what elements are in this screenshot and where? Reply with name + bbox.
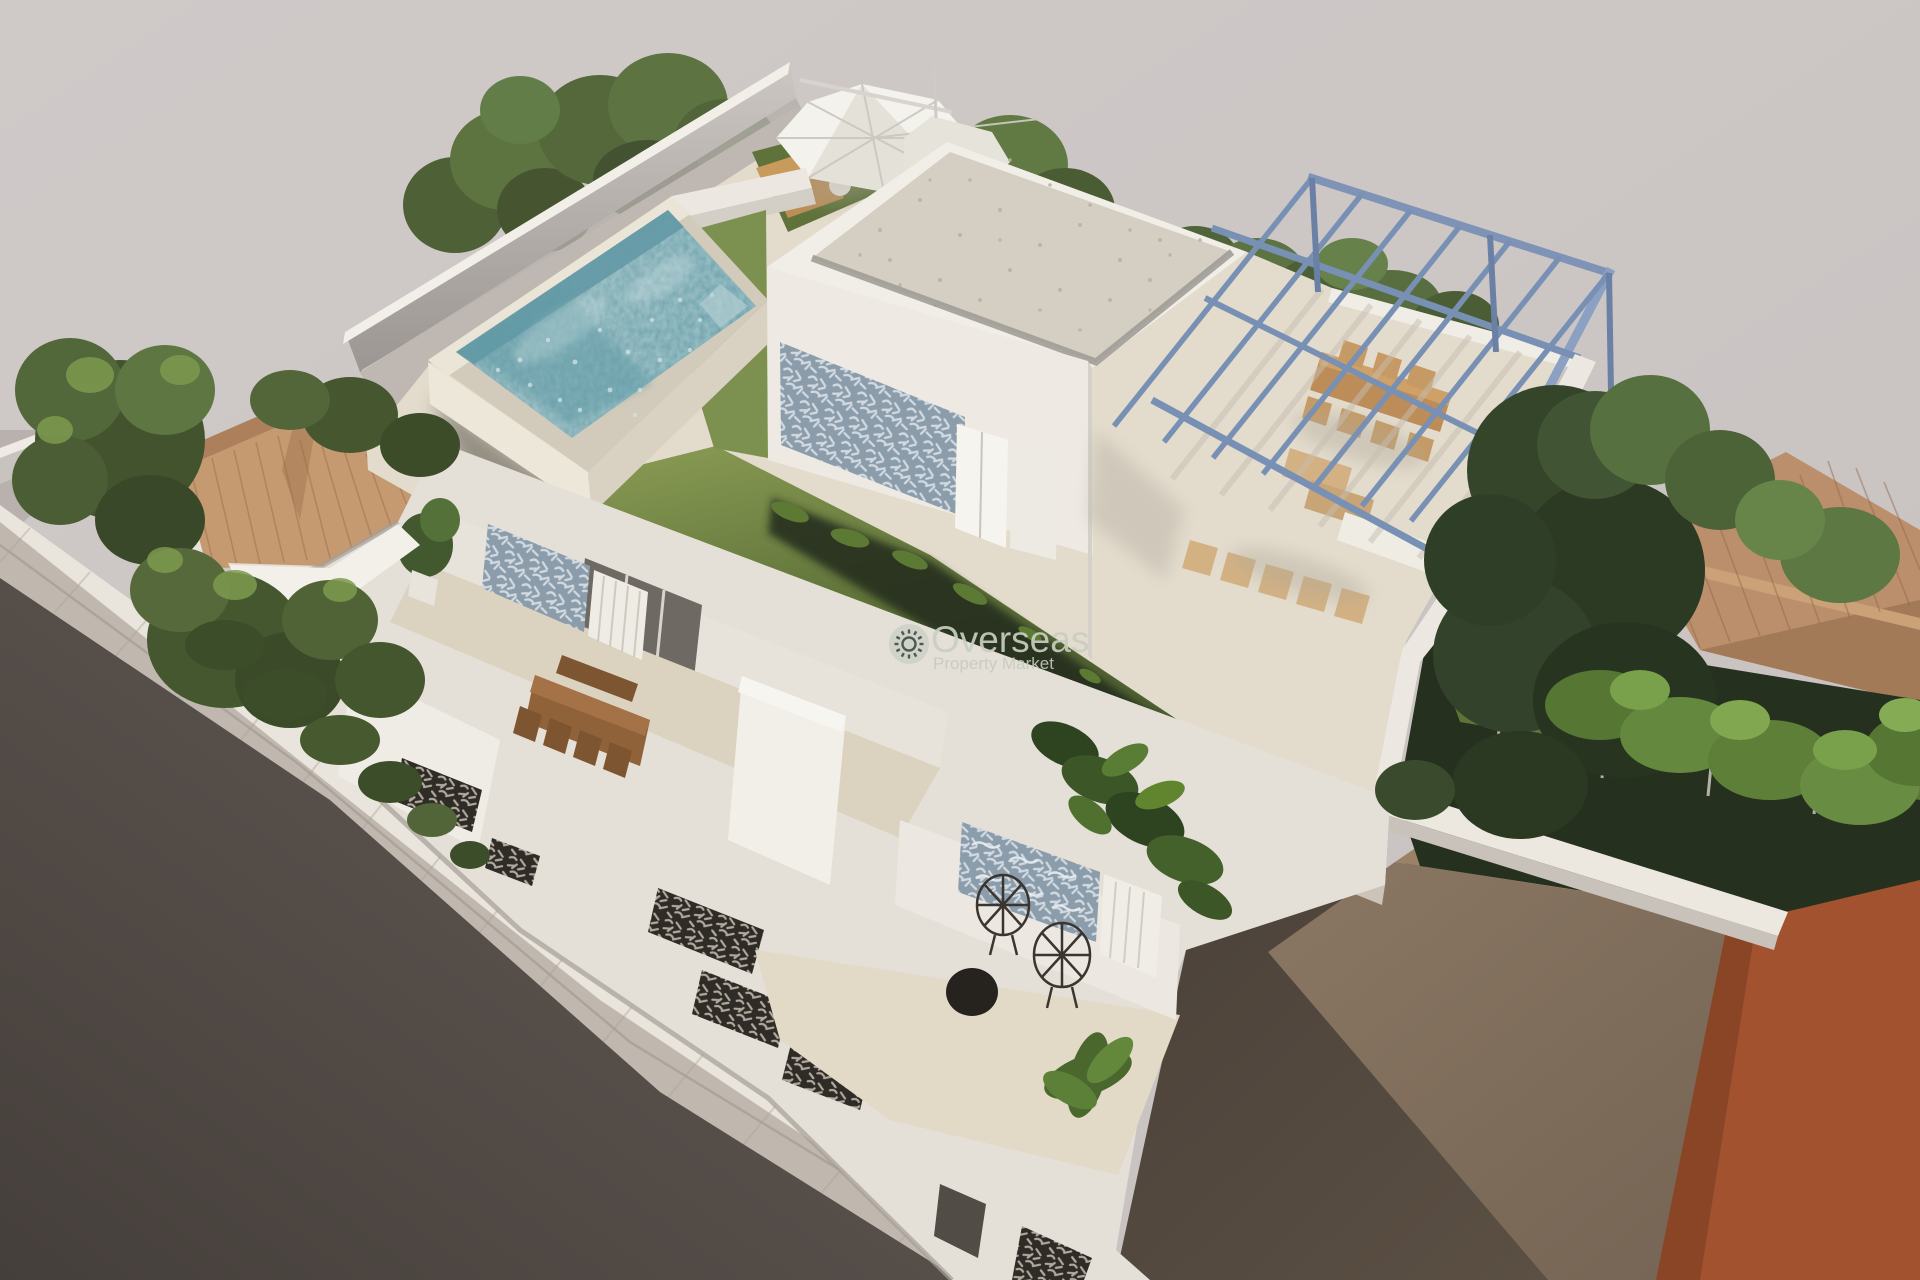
svg-text:Property Market: Property Market bbox=[933, 654, 1054, 673]
